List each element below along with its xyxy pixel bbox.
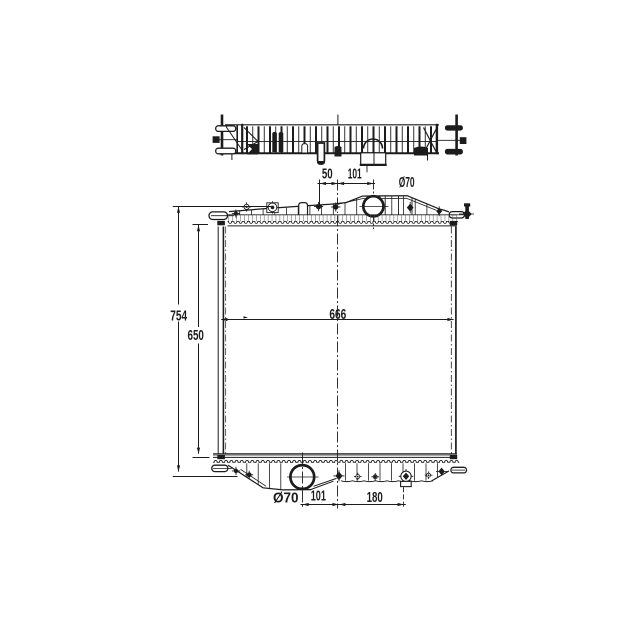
svg-text:Ø70: Ø70 [273,491,299,507]
svg-text:666: 666 [329,307,346,323]
svg-text:180: 180 [367,490,383,506]
svg-text:650: 650 [188,328,204,344]
svg-text:754: 754 [170,309,187,325]
svg-text:Ø70: Ø70 [399,175,415,191]
svg-text:101: 101 [348,166,362,182]
svg-text:50: 50 [322,166,333,182]
svg-text:101: 101 [311,488,326,504]
